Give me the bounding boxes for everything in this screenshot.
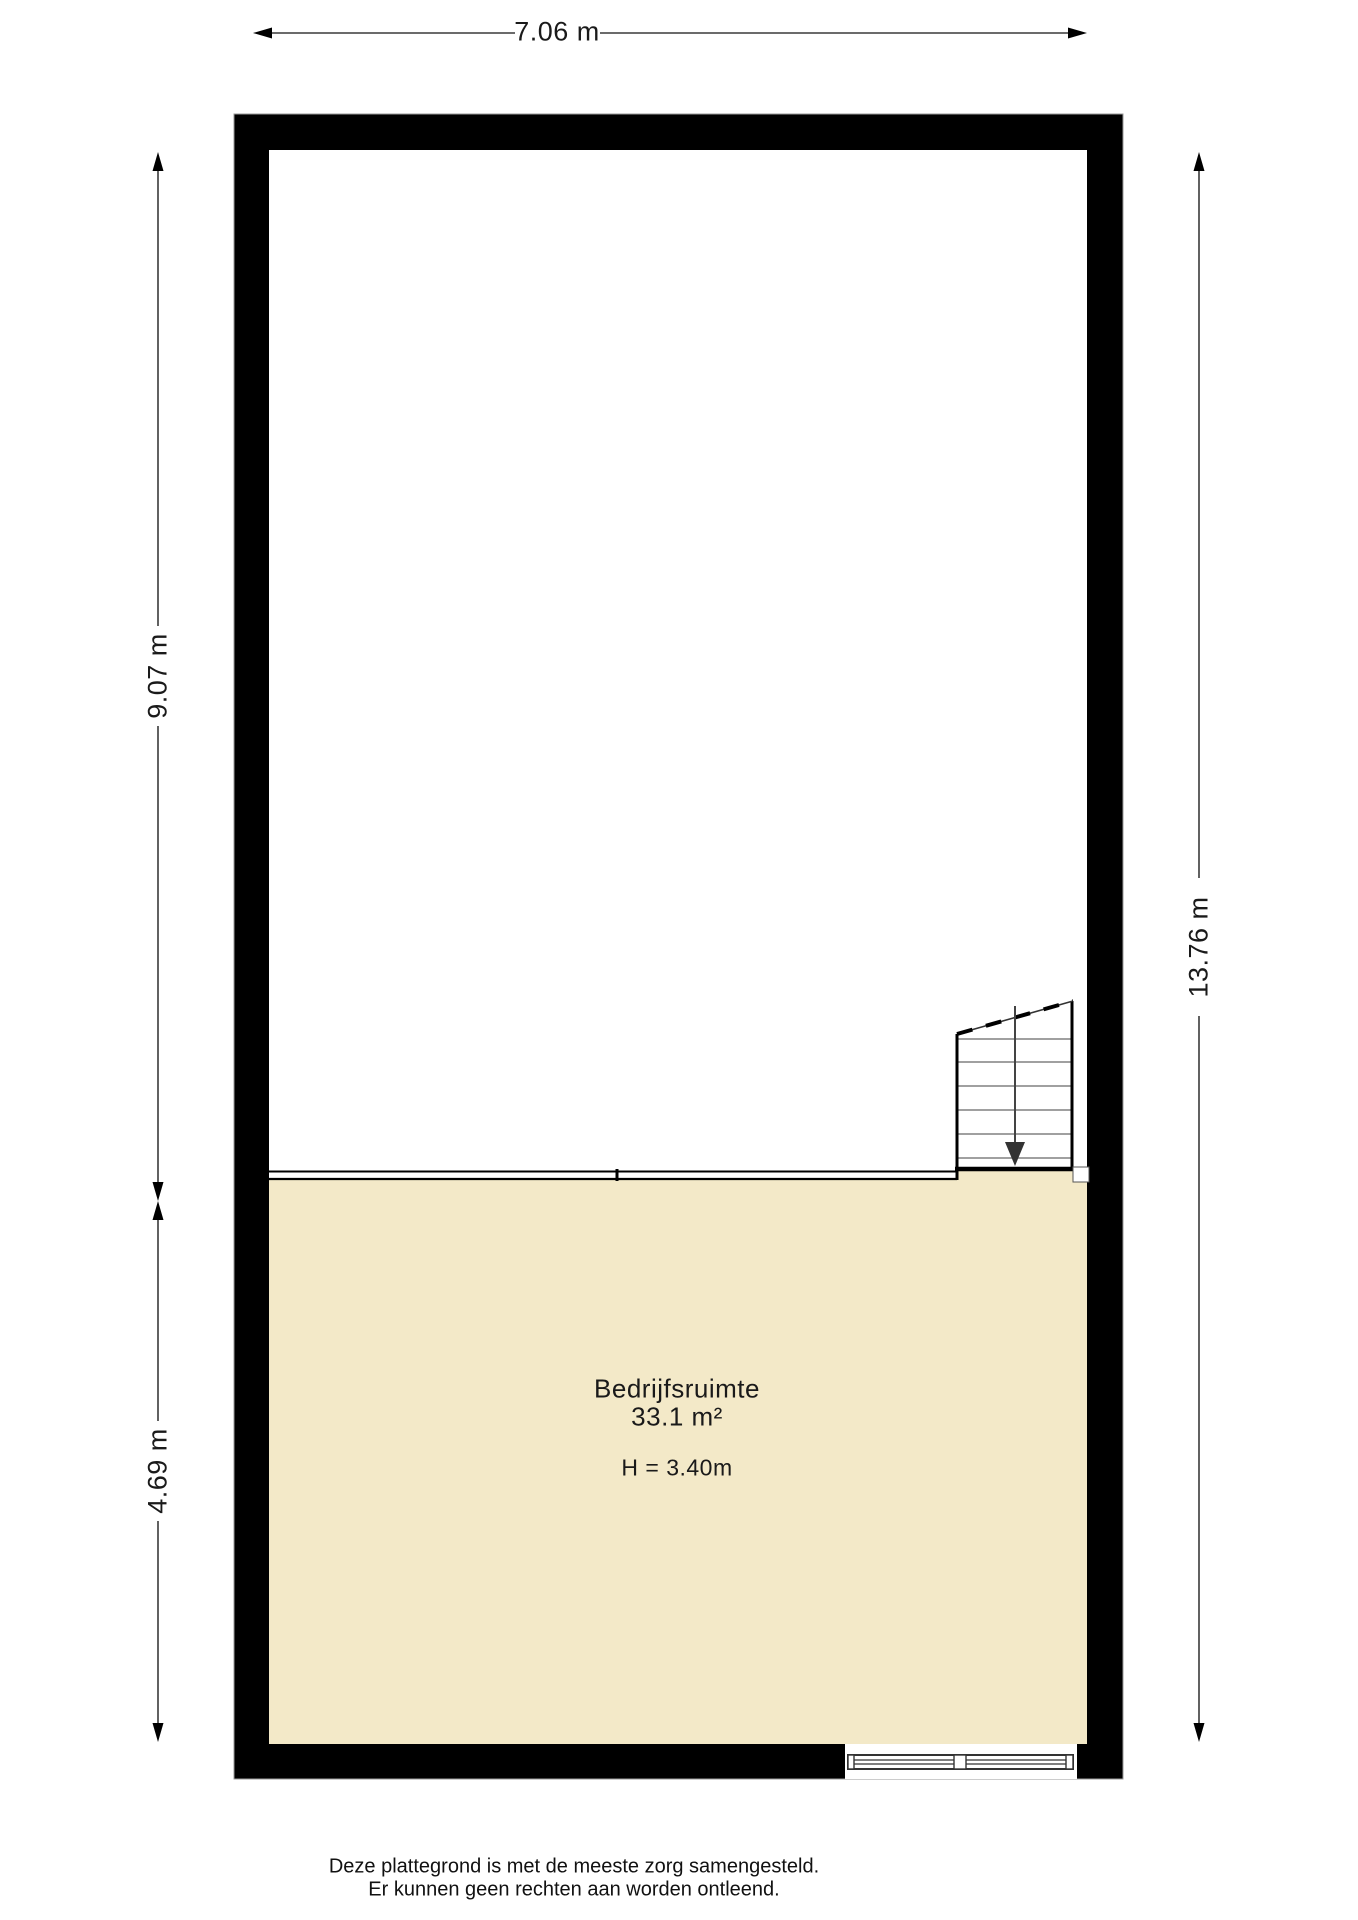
dimension-label-left-lower: 4.69 m bbox=[143, 1428, 174, 1514]
arrow-down-icon bbox=[1194, 1723, 1205, 1742]
stair-side-opening bbox=[1073, 1167, 1089, 1182]
footer-disclaimer-line2: Er kunnen geen rechten aan worden ontlee… bbox=[368, 1879, 779, 1902]
room-floor-under-stairs bbox=[957, 1171, 1087, 1181]
window-post-right bbox=[1066, 1755, 1073, 1769]
dimension-top bbox=[253, 28, 1087, 39]
arrow-down-icon bbox=[153, 1182, 164, 1201]
arrow-up-icon bbox=[153, 1201, 164, 1220]
window-post-left bbox=[848, 1755, 854, 1769]
floor-plan-drawing bbox=[0, 0, 1358, 1920]
arrow-up-icon bbox=[153, 152, 164, 171]
arrow-down-icon bbox=[153, 1723, 164, 1742]
staircase bbox=[955, 1001, 1089, 1182]
partition-wall bbox=[269, 1169, 957, 1181]
room-height-label: H = 3.40m bbox=[621, 1455, 732, 1482]
window-post-middle bbox=[954, 1755, 966, 1769]
arrow-left-icon bbox=[253, 28, 272, 39]
dimension-label-right: 13.76 m bbox=[1184, 896, 1215, 997]
arrow-right-icon bbox=[1068, 28, 1087, 39]
bottom-window bbox=[845, 1744, 1077, 1779]
footer-disclaimer-line1: Deze plattegrond is met de meeste zorg s… bbox=[329, 1856, 819, 1879]
arrow-up-icon bbox=[1194, 152, 1205, 171]
room-area-label: 33.1 m² bbox=[631, 1402, 723, 1433]
dimension-label-left-upper: 9.07 m bbox=[143, 633, 174, 719]
room-name-label: Bedrijfsruimte bbox=[594, 1374, 760, 1405]
floor-plan-page: 7.06 m 9.07 m 4.69 m 13.76 m Bedrijfsrui… bbox=[0, 0, 1358, 1920]
dimension-label-top: 7.06 m bbox=[514, 17, 600, 48]
